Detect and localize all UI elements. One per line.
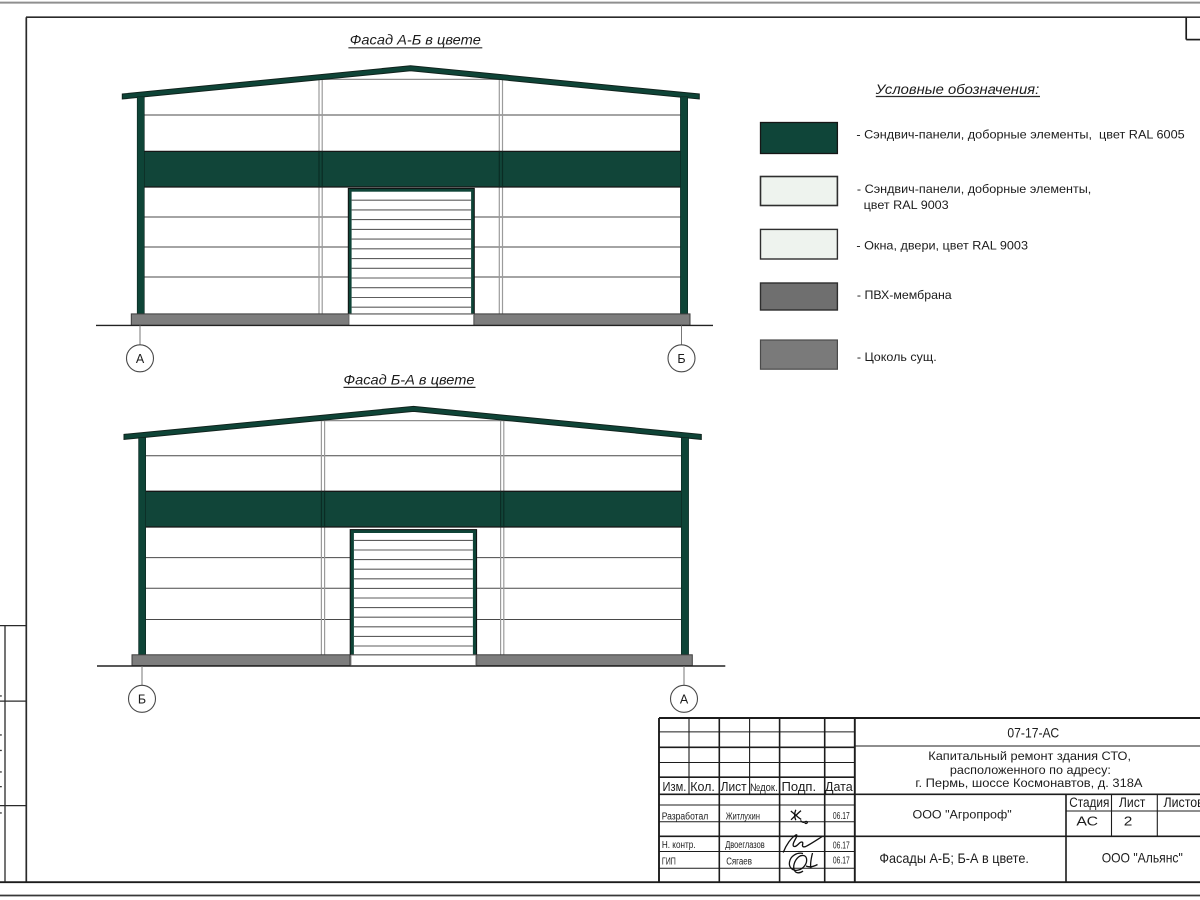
svg-text:- Сэндвич-панели, доборные эле: - Сэндвич-панели, доборные элементы, цве… — [856, 128, 1185, 142]
svg-text:Кол.: Кол. — [690, 780, 715, 794]
svg-text:Листов: Листов — [1164, 795, 1200, 810]
svg-text:ООО "Альянс": ООО "Альянс" — [1102, 850, 1183, 865]
svg-text:06.17: 06.17 — [833, 855, 850, 866]
svg-text:Фасады А-Б; Б-А в цвете.: Фасады А-Б; Б-А в цвете. — [879, 851, 1029, 866]
svg-text:Условные обозначения:: Условные обозначения: — [875, 81, 1040, 97]
svg-text:Подп.: Подп. — [782, 780, 817, 794]
svg-text:Сягаев: Сягаев — [726, 857, 752, 868]
svg-text:Фасад Б-А в цвете: Фасад Б-А в цвете — [344, 372, 475, 387]
svg-text:Б: Б — [138, 692, 146, 706]
svg-text:ГИП: ГИП — [662, 857, 676, 868]
svg-text:- ПВХ-мембрана: - ПВХ-мембрана — [857, 288, 952, 302]
svg-text:Двоеглазов: Двоеглазов — [725, 840, 765, 851]
svg-text:г. Пермь, шоссе Космонавтов, д: г. Пермь, шоссе Космонавтов, д. 318А — [915, 776, 1143, 790]
svg-text:Лист: Лист — [1119, 795, 1146, 810]
svg-text:АС: АС — [1076, 815, 1098, 829]
svg-text:- Цоколь сущ.: - Цоколь сущ. — [857, 350, 937, 364]
svg-text:расположенного по адресу:: расположенного по адресу: — [950, 763, 1111, 777]
svg-text:06.17: 06.17 — [833, 840, 850, 851]
svg-text:Изм.: Изм. — [663, 780, 687, 794]
svg-text:цвет RAL 9003: цвет RAL 9003 — [864, 198, 949, 212]
svg-text:Дата: Дата — [825, 780, 853, 794]
svg-text:Фасад А-Б в цвете: Фасад А-Б в цвете — [350, 32, 482, 47]
svg-text:ООО "Агропроф": ООО "Агропроф" — [913, 807, 1012, 821]
svg-text:Капитальный ремонт здания СТО,: Капитальный ремонт здания СТО, — [928, 749, 1131, 763]
svg-text:2: 2 — [1124, 815, 1133, 829]
svg-text:Н. контр.: Н. контр. — [662, 840, 696, 851]
svg-text:Разработал: Разработал — [662, 811, 709, 822]
svg-text:А: А — [136, 352, 145, 366]
svg-text:№док.: №док. — [750, 782, 778, 794]
svg-text:Житлухин: Житлухин — [726, 811, 760, 822]
svg-text:Лист: Лист — [721, 780, 747, 794]
svg-text:- Сэндвич-панели, доборные эле: - Сэндвич-панели, доборные элементы, — [857, 182, 1091, 196]
svg-text:Б: Б — [677, 352, 685, 366]
svg-text:07-17-АС: 07-17-АС — [1007, 726, 1059, 741]
svg-text:- Окна, двери, цвет RAL 9003: - Окна, двери, цвет RAL 9003 — [856, 238, 1028, 252]
svg-text:А: А — [680, 692, 689, 706]
svg-text:06.17: 06.17 — [833, 811, 850, 822]
svg-text:Стадия: Стадия — [1069, 795, 1109, 810]
